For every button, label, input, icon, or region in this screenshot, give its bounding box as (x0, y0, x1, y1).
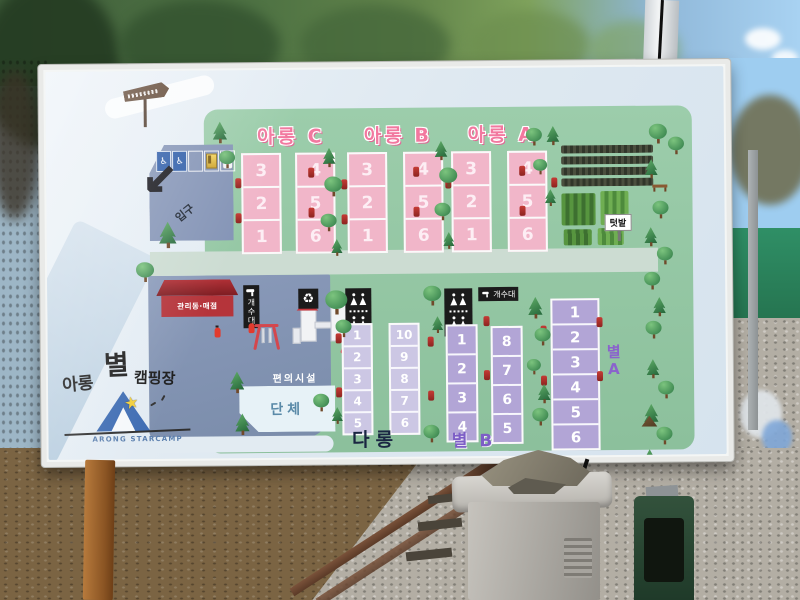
garden-bed (561, 167, 653, 176)
site-cell: 6 (553, 425, 598, 448)
campground-logo: 아롱 별 캠핑장 ★ ARONG STARCAMP (56, 342, 232, 456)
arong-c-right-column: 456 (295, 152, 336, 253)
site-cell: 3 (243, 155, 279, 188)
car-icon (222, 153, 233, 169)
site-cell: 4 (297, 154, 333, 187)
logo-korean-3: 캠핑장 (134, 366, 176, 388)
gray-post (748, 150, 758, 430)
marker-icon (236, 213, 242, 223)
site-cell: 8 (391, 369, 418, 391)
site-cell: 1 (350, 220, 386, 251)
site-cell: 2 (453, 186, 489, 219)
site-cell: 8 (493, 328, 521, 357)
site-cell: 5 (509, 186, 545, 219)
arong-a-left-column: 321 (451, 151, 492, 252)
swing-frame (272, 326, 280, 350)
marker-icon (445, 178, 451, 188)
site-cell: 3 (448, 384, 476, 413)
site-cell: 6 (510, 219, 546, 250)
marker-icon (308, 168, 314, 178)
fire-extinguisher-icon (215, 327, 221, 337)
site-cell: 3 (344, 369, 371, 391)
site-cell: 9 (391, 347, 418, 369)
greenhouse-structure (732, 228, 800, 323)
swing (262, 328, 265, 343)
star-icon: ★ (122, 392, 140, 414)
site-cell: 4 (405, 154, 441, 187)
site-cell: 5 (553, 400, 598, 425)
campground-map: ♿ ♿ P ↙ 입구 아롱 C 아롱 B 아롱 A 321 456 321 45… (45, 66, 726, 460)
tiny-text (449, 310, 467, 312)
site-cell: 1 (448, 326, 476, 355)
bare-trees-blob (730, 95, 800, 205)
play-ladder (293, 328, 301, 344)
byul-b-left-column: 1234 (446, 324, 479, 442)
site-cell: 4 (344, 391, 371, 413)
wooden-post (83, 460, 115, 600)
site-cell: 2 (553, 325, 598, 350)
faucet-icon (246, 288, 256, 297)
management-building: 관리동·매점 (161, 295, 233, 317)
marker-icon (413, 167, 419, 177)
photo-of-campground-map-sign: ♿ ♿ P ↙ 입구 아롱 C 아롱 B 아롱 A 321 456 321 45… (0, 0, 800, 600)
marker-icon (597, 371, 603, 381)
section-title-arong-b: 아롱 B (338, 120, 458, 148)
marker-icon (483, 316, 489, 326)
person-icon (459, 293, 466, 305)
site-cell: 1 (552, 300, 597, 325)
site-cell: 6 (493, 386, 521, 415)
site-cell: 7 (493, 357, 521, 386)
faucet-icon (482, 290, 490, 297)
sparkle-mark (161, 395, 166, 401)
parking-stall (204, 150, 219, 171)
site-cell: 2 (448, 355, 476, 384)
garden-sign: 텃밭 (605, 214, 632, 231)
sink-label: 개수대 (493, 288, 515, 299)
marker-icon (541, 376, 547, 386)
site-cell: 10 (391, 325, 418, 347)
marker-icon (428, 391, 434, 401)
tiny-text (349, 310, 367, 312)
recycling-sign: ♻ (298, 289, 318, 309)
site-cell: 2 (344, 347, 371, 369)
section-title-darong: 다롱 (330, 425, 420, 453)
marker-icon (336, 387, 342, 397)
sparkle-mark (150, 402, 156, 407)
site-cell: 1 (344, 325, 371, 347)
site-cell: 7 (391, 391, 418, 413)
garden-sign-post (618, 231, 621, 241)
site-cell: 3 (453, 153, 489, 186)
logo-english: ARONG STARCAMP (92, 435, 182, 444)
site-cell: 5 (297, 187, 333, 220)
site-cell: 4 (509, 153, 545, 186)
arong-b-right-column: 456 (403, 151, 444, 252)
site-cell: 2 (243, 188, 279, 221)
marker-icon (309, 208, 315, 218)
byul-a-label-line2: A (604, 361, 624, 378)
swing-frame (253, 326, 261, 350)
site-cell: 3 (553, 350, 598, 375)
parking-stall (220, 150, 235, 171)
marker-icon (484, 370, 490, 380)
site-cell: 1 (454, 219, 490, 250)
site-cell: 6 (406, 220, 442, 251)
site-cell: 6 (298, 220, 334, 251)
person-icon (359, 293, 366, 305)
logo-korean-1: 아롱 (61, 368, 95, 396)
marker-icon (341, 179, 347, 189)
section-title-arong-c: 아롱 C (231, 121, 351, 149)
site-cell: 4 (553, 375, 598, 400)
cloud (745, 28, 781, 50)
marker-icon (520, 206, 526, 216)
garden-bed (561, 178, 653, 187)
section-title-byul-b: 별 B (438, 426, 508, 452)
darong-left-column: 12345 (342, 323, 374, 435)
section-title-byul-a: 별 A (604, 344, 624, 378)
garden-bed (561, 156, 653, 165)
entrance-arrow-icon: ↙ (142, 159, 178, 201)
site-cell: 2 (349, 187, 385, 220)
management-building-roof (156, 279, 238, 296)
trail-sign-post (144, 99, 147, 127)
darong-right-column: 109876 (389, 323, 421, 435)
arong-c-left-column: 321 (241, 153, 282, 254)
arong-a-right-column: 456 (507, 151, 548, 252)
garden-bed (561, 145, 653, 154)
trail-direction-sign (123, 85, 173, 133)
marker-icon (428, 337, 434, 347)
facilities-label: 편의시설 (260, 369, 330, 385)
electrical-panel (644, 518, 684, 582)
sink-sign-horizontal: 개수대 (478, 287, 518, 301)
vending-machine-icon (206, 153, 217, 168)
byul-a-column: 123456 (550, 298, 600, 450)
person-icon (350, 293, 357, 305)
utility-box-vents (564, 538, 592, 578)
marker-icon (336, 333, 342, 343)
marker-icon (342, 214, 348, 224)
marker-icon (551, 178, 557, 188)
parking-stall (188, 151, 203, 172)
logo-korean-2: 별 (103, 343, 130, 383)
marker-icon (414, 207, 420, 217)
crop-patch (564, 229, 592, 245)
site-cell: 1 (244, 221, 280, 252)
group-site: 단체 (239, 385, 335, 432)
site-cell: 3 (349, 154, 385, 187)
marker-icon (541, 326, 547, 336)
crop-patch (561, 193, 595, 225)
swing (269, 328, 272, 343)
marker-icon (519, 166, 525, 176)
marker-icon (235, 178, 241, 188)
site-cell: 5 (405, 187, 441, 220)
marker-icon (596, 317, 602, 327)
arong-b-left-column: 321 (347, 152, 388, 253)
bench-icon (652, 185, 667, 188)
tree-icon (643, 449, 656, 460)
byul-a-label-line1: 별 (604, 344, 624, 361)
person-icon (450, 293, 457, 305)
section-title-arong-a: 아롱 A (442, 119, 562, 147)
campground-map-signboard: ♿ ♿ P ↙ 입구 아롱 C 아롱 B 아롱 A 321 456 321 45… (38, 59, 733, 467)
